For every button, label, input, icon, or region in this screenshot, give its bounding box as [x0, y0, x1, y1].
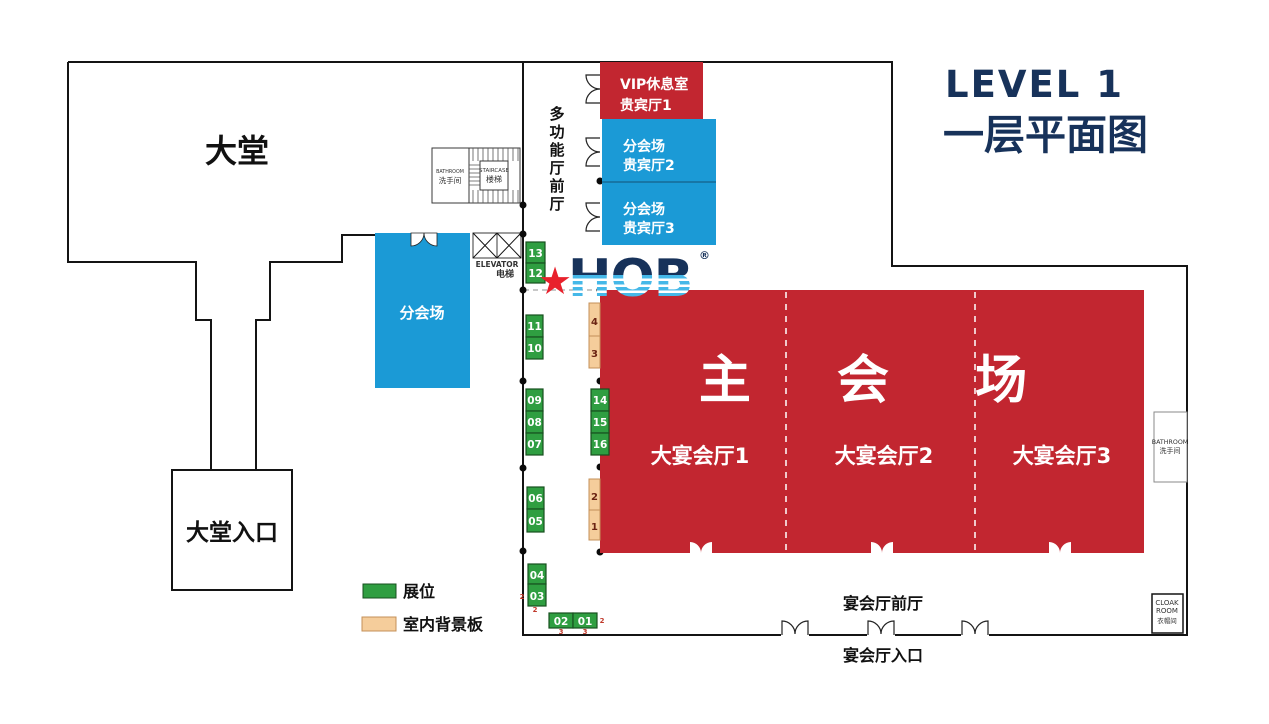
- booth-14: 14: [591, 389, 609, 411]
- page-title: LEVEL 1 一层平面图: [943, 63, 1148, 159]
- banquet-entrance-label: 宴会厅入口: [843, 646, 923, 665]
- backdrop-2: 2: [589, 479, 600, 510]
- backdrop-2-label: 2: [591, 492, 598, 503]
- booth-16: 16: [591, 433, 609, 455]
- vip-door-icons: [586, 75, 600, 231]
- booth-08-label: 08: [527, 417, 542, 429]
- lobby-outline-left: [68, 62, 211, 470]
- main-hall-title: 主 会 场: [699, 351, 1061, 411]
- booth-14-label: 14: [593, 395, 608, 407]
- booth-11: 11: [526, 315, 543, 337]
- breakout-room-left-label: 分会场: [399, 304, 444, 322]
- booth-05: 05: [527, 509, 544, 532]
- booth-11-label: 11: [527, 321, 542, 333]
- booth-09-label: 09: [527, 395, 542, 407]
- booth-06-label: 06: [528, 493, 543, 505]
- elevator-en-label: ELEVATOR: [476, 260, 519, 269]
- floor-plan-page: 大堂入口 大堂 STAIRCASE 楼梯 BATHROOM 洗手间 ELEVAT…: [0, 0, 1269, 724]
- cloak-room-en2-label: ROOM: [1156, 607, 1178, 615]
- main-hall-3-label: 大宴会厅3: [1013, 444, 1112, 468]
- hob-logo-star-icon: ★: [538, 259, 572, 303]
- vip3-line1: 分会场: [623, 201, 665, 218]
- vip1-line2: 贵宾厅1: [620, 97, 672, 114]
- cloak-room: CLOAK ROOM 衣帽间: [1152, 594, 1183, 633]
- legend-backdrop-swatch: [362, 617, 396, 631]
- backdrop-1-label: 1: [591, 522, 598, 533]
- booth-07: 07: [526, 433, 543, 455]
- banquet-door-1-icon: [782, 621, 808, 635]
- booth-04-label: 04: [530, 570, 545, 582]
- bathroom-right-en-label: BATHROOM: [1152, 439, 1188, 446]
- hob-logo-registered-icon: ®: [699, 249, 710, 262]
- backdrop-3-label: 3: [591, 349, 598, 360]
- booth-07-label: 07: [527, 439, 542, 451]
- dim-below-01: 3: [583, 628, 588, 636]
- staircase-en-label: STAIRCASE: [479, 168, 509, 174]
- banquet-door-3-icon: [962, 621, 988, 635]
- staircase-zh-label: 楼梯: [486, 174, 502, 184]
- breakout-room-left: 分会场: [375, 233, 470, 388]
- bathroom-right: BATHROOM 洗手间: [1152, 412, 1188, 482]
- lobby-label: 大堂: [205, 132, 269, 170]
- vip3-line2: 贵宾厅3: [623, 220, 675, 237]
- backdrop-4-label: 4: [591, 317, 598, 328]
- foyer-char-1: 多: [549, 105, 564, 123]
- booth-10: 10: [526, 337, 543, 359]
- foyer-char-6: 厅: [549, 195, 564, 213]
- lobby-entrance: 大堂入口: [172, 470, 292, 590]
- booth-16-label: 16: [593, 439, 608, 451]
- booth-01: 01: [573, 613, 597, 628]
- bathroom-small-en-label: BATHROOM: [436, 169, 464, 175]
- booth-15-label: 15: [593, 417, 608, 429]
- main-hall-box: [600, 290, 1144, 553]
- bathroom-right-zh-label: 洗手间: [1160, 446, 1181, 455]
- banquet-foyer-label: 宴会厅前厅: [843, 594, 923, 613]
- elevator: ELEVATOR 电梯: [473, 233, 521, 280]
- page-title-floor: 一层平面图: [943, 111, 1148, 159]
- main-hall-1-label: 大宴会厅1: [651, 444, 750, 468]
- booth-02: 02: [549, 613, 573, 628]
- booth-03: 03: [528, 584, 546, 606]
- foyer-char-2: 功: [549, 123, 564, 141]
- hob-logo: ★ HOB ®: [538, 249, 710, 309]
- cloak-room-zh-label: 衣帽间: [1157, 616, 1177, 625]
- cloak-room-en1-label: CLOAK: [1155, 599, 1179, 607]
- vip2-door-icon: [586, 138, 600, 166]
- elevator-zh-label: 电梯: [496, 268, 514, 280]
- booth-03-label: 03: [530, 591, 545, 603]
- backdrop-3: 3: [589, 336, 600, 368]
- booth-15: 15: [591, 411, 609, 433]
- lobby-corridor-right: [256, 235, 375, 470]
- hob-logo-wordmark: HOB: [568, 249, 692, 309]
- booth-09: 09: [526, 389, 543, 411]
- vip2-line2: 贵宾厅2: [623, 157, 675, 174]
- booth-06: 06: [527, 487, 544, 509]
- vip2-line1: 分会场: [623, 138, 665, 155]
- vip3-door-icon: [586, 203, 600, 231]
- page-title-level: LEVEL 1: [945, 63, 1124, 106]
- booth-02-label: 02: [554, 616, 569, 628]
- dim-below-02: 3: [559, 628, 564, 636]
- staircase-block: STAIRCASE 楼梯 BATHROOM 洗手间: [432, 148, 520, 203]
- foyer-vertical-label: 多 功 能 厅 前 厅: [549, 105, 564, 213]
- booth-05-label: 05: [528, 516, 543, 528]
- booth-08: 08: [526, 411, 543, 433]
- foyer-char-4: 厅: [549, 159, 564, 177]
- dim-right-of-01: 2: [600, 617, 605, 625]
- booth-01-label: 01: [578, 616, 593, 628]
- foyer-char-3: 能: [549, 141, 564, 159]
- foyer-char-5: 前: [549, 177, 564, 195]
- vip1-door-icon: [586, 75, 600, 103]
- bathroom-small-zh-label: 洗手间: [439, 175, 462, 185]
- vip-rooms: VIP休息室 贵宾厅1 分会场 贵宾厅2 分会场 贵宾厅3: [586, 62, 716, 245]
- main-hall: 主 会 场 大宴会厅1 大宴会厅2 大宴会厅3: [600, 290, 1144, 554]
- vip1-line1: VIP休息室: [620, 76, 688, 93]
- booth-10-label: 10: [527, 343, 542, 355]
- lobby-entrance-label: 大堂入口: [186, 520, 278, 546]
- legend-backdrop-label: 室内背景板: [403, 615, 484, 634]
- main-hall-2-label: 大宴会厅2: [835, 444, 934, 468]
- dim-left-of-03: 2: [520, 593, 525, 601]
- legend-booth-label: 展位: [403, 582, 435, 601]
- legend-booth-swatch: [363, 584, 396, 598]
- booth-04: 04: [528, 564, 546, 584]
- banquet-door-2-icon: [868, 621, 894, 635]
- floor-plan-canvas: 大堂入口 大堂 STAIRCASE 楼梯 BATHROOM 洗手间 ELEVAT…: [0, 0, 1269, 724]
- dim-below-03: 2: [533, 606, 538, 614]
- legend: 展位 室内背景板: [362, 582, 484, 634]
- backdrop-1: 1: [589, 510, 600, 540]
